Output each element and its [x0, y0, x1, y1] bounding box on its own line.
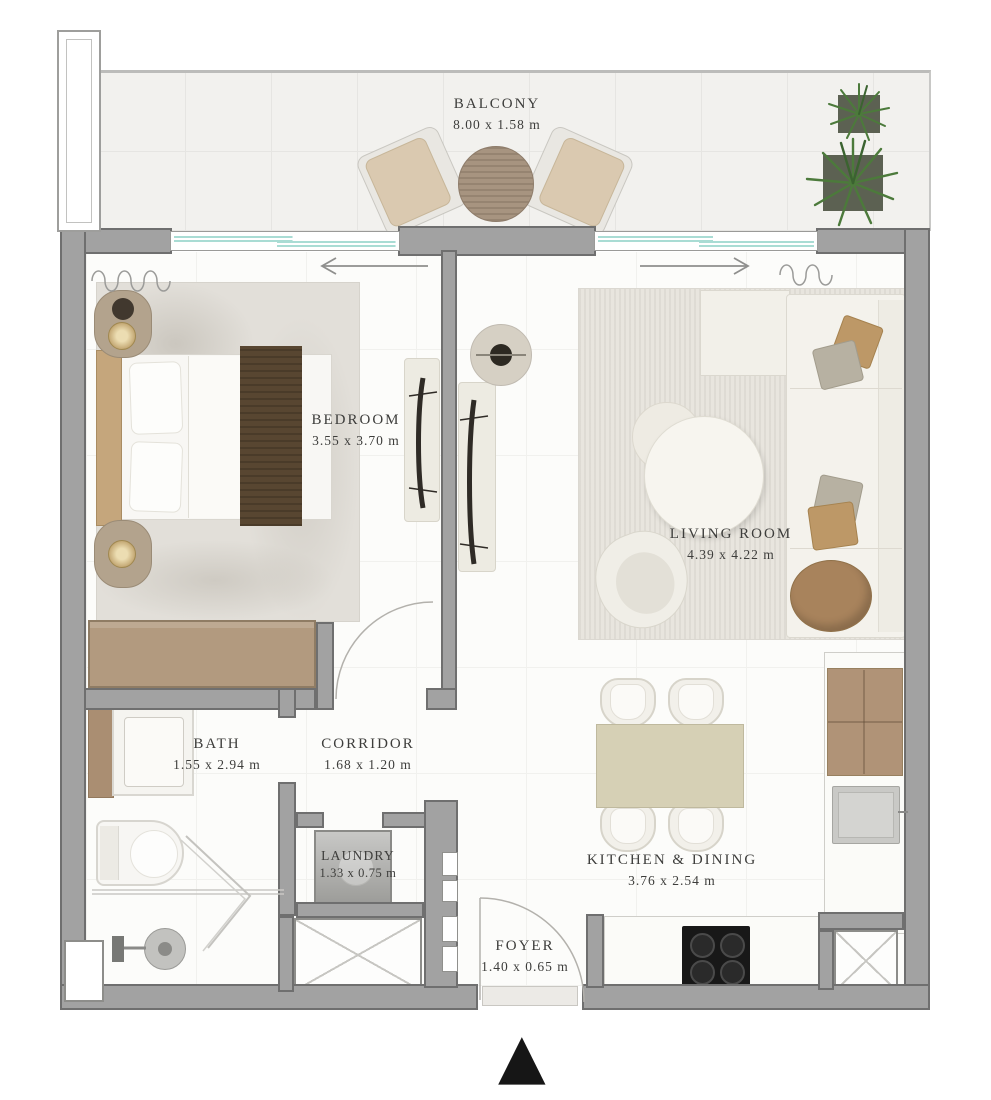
wall-bath-right-upper	[278, 688, 296, 718]
room-label-corridor: CORRIDOR 1.68 x 1.20 m	[290, 736, 446, 773]
chair-seat	[678, 684, 714, 720]
wall-bedroom-divider	[441, 250, 457, 710]
cooktop	[682, 926, 750, 988]
entry-threshold	[482, 986, 578, 1006]
wall-niche	[442, 880, 458, 902]
room-dimensions: 3.55 x 3.70 m	[266, 433, 446, 449]
wall-outer-right	[904, 228, 930, 1010]
kitchen-sink	[832, 786, 900, 844]
room-name: LAUNDRY	[288, 848, 428, 864]
room-dimensions: 1.40 x 0.65 m	[452, 959, 598, 975]
room-label-balcony: BALCONY 8.00 x 1.58 m	[377, 96, 617, 133]
room-dimensions: 3.76 x 2.54 m	[567, 873, 777, 889]
balcony-column	[57, 30, 101, 232]
wall-outer-left	[60, 228, 86, 1010]
room-dimensions: 8.00 x 1.58 m	[377, 117, 617, 133]
balcony-column-inner	[66, 39, 92, 223]
toilet-bowl	[130, 830, 178, 878]
room-name: CORRIDOR	[290, 736, 446, 753]
shower-valve	[112, 936, 124, 962]
coffee-table-large	[644, 416, 764, 536]
wall-kitchen-shaft-left	[818, 930, 834, 990]
room-label-living-room: LIVING ROOM 4.39 x 4.22 m	[616, 526, 846, 563]
sofa-seam-1	[790, 388, 902, 389]
bed-pillow-top	[129, 361, 183, 435]
vanity-counter	[88, 696, 114, 798]
burner	[720, 933, 745, 958]
toilet-tank	[100, 826, 119, 880]
refrigerator-cabinet	[827, 668, 903, 776]
bed-pillow-bottom	[129, 441, 183, 513]
dining-table	[596, 724, 744, 808]
room-name: BALCONY	[377, 96, 617, 113]
chair-seat	[610, 808, 646, 844]
sink-basin	[838, 792, 894, 838]
room-label-bath: BATH 1.55 x 2.94 m	[142, 736, 292, 773]
room-label-kitchen-dining: KITCHEN & DINING 3.76 x 2.54 m	[567, 852, 777, 889]
room-name: KITCHEN & DINING	[567, 852, 777, 869]
balcony-round-table	[458, 146, 534, 222]
burner	[690, 960, 715, 985]
north-arrow-icon: ▲	[498, 1024, 546, 1088]
sofa-chaise	[700, 290, 790, 376]
bedroom-wardrobe	[88, 620, 316, 688]
service-shaft-kitchen	[834, 930, 898, 992]
hall-tv-console	[458, 382, 496, 572]
room-dimensions: 1.33 x 0.75 m	[288, 866, 428, 881]
sliding-door-living	[594, 231, 818, 251]
room-label-bedroom: BEDROOM 3.55 x 3.70 m	[266, 412, 446, 449]
room-name: FOYER	[452, 938, 598, 955]
dining-chair	[600, 802, 656, 852]
chair-seat	[610, 684, 646, 720]
room-label-laundry: LAUNDRY 1.33 x 0.75 m	[288, 848, 428, 881]
dining-chair	[600, 678, 656, 728]
wall-laundry-top-left	[296, 812, 324, 828]
room-name: BATH	[142, 736, 292, 753]
wall-wardrobe-stub	[316, 622, 334, 710]
bed-headboard	[96, 350, 122, 526]
hall-side-table-line	[476, 354, 526, 356]
wall-top-pier-center	[398, 226, 596, 256]
room-name: BEDROOM	[266, 412, 446, 429]
burner	[690, 933, 715, 958]
dining-chair	[668, 802, 724, 852]
wall-niche	[442, 852, 458, 876]
nightstand-top-lamp	[108, 322, 136, 350]
burner	[720, 960, 745, 985]
sliding-door-bedroom	[170, 231, 400, 251]
room-dimensions: 1.55 x 2.94 m	[142, 757, 292, 773]
apartment-floor-plan: BALCONY 8.00 x 1.58 m BEDROOM 3.55 x 3.7…	[0, 0, 991, 1100]
corner-notch	[64, 940, 104, 1002]
wall-outer-bottom-right	[582, 984, 930, 1010]
shower-head-center	[158, 942, 172, 956]
nightstand-bottom-lamp	[108, 540, 136, 568]
wall-bedroom-door-jamb	[426, 688, 457, 710]
wall-laundry-bottom	[296, 902, 424, 918]
room-dimensions: 1.68 x 1.20 m	[290, 757, 446, 773]
nightstand-top-decor	[112, 298, 134, 320]
dining-chair	[668, 678, 724, 728]
room-dimensions: 4.39 x 4.22 m	[616, 547, 846, 563]
wall-kitchen-shaft-top	[818, 912, 904, 930]
sofa-back-cushions	[878, 300, 904, 632]
chair-seat	[678, 808, 714, 844]
room-label-foyer: FOYER 1.40 x 0.65 m	[452, 938, 598, 975]
room-name: LIVING ROOM	[616, 526, 846, 543]
toilet	[96, 820, 184, 886]
service-shaft-laundry	[294, 918, 422, 992]
wall-shaft-left	[278, 916, 294, 992]
wall-outer-bottom-left	[60, 984, 478, 1010]
pouf	[790, 560, 872, 632]
